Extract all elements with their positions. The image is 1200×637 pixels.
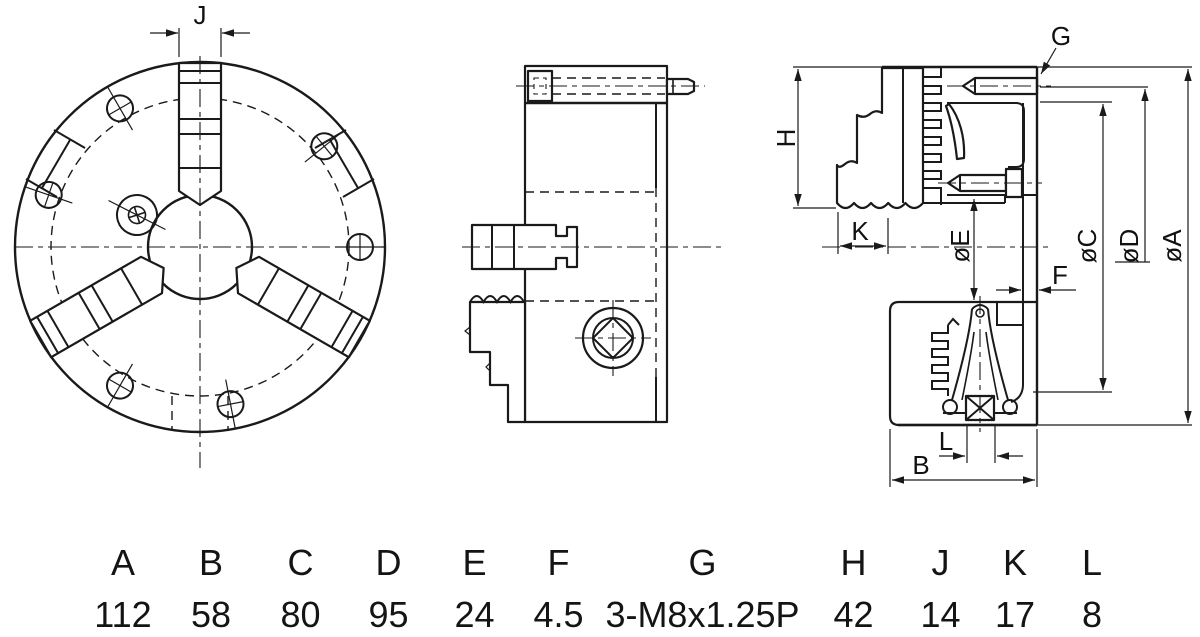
dim-label-e: øE xyxy=(945,229,975,262)
dim-label-h: H xyxy=(771,129,801,148)
dim-label-d: øD xyxy=(1114,229,1144,264)
table-value-g: 3-M8x1.25P xyxy=(600,592,805,637)
dim-label-c: øC xyxy=(1072,229,1102,264)
table-header-c: C xyxy=(256,534,345,592)
dim-label-l: L xyxy=(939,426,953,456)
side-view xyxy=(462,66,722,422)
table-header-row: A B C D E F G H J K L xyxy=(80,534,1133,592)
table-value-row: 112 58 80 95 24 4.5 3-M8x1.25P 42 14 17 … xyxy=(80,592,1133,637)
table-value-j: 14 xyxy=(902,592,979,637)
screw-mid xyxy=(938,169,1042,197)
chuck-technical-drawing: J xyxy=(0,0,1200,637)
table-header-e: E xyxy=(432,534,517,592)
dim-label-j: J xyxy=(194,0,207,30)
dimension-L: L xyxy=(939,424,1023,463)
dim-label-a: øA xyxy=(1157,229,1187,263)
table-header-k: K xyxy=(979,534,1051,592)
table-value-h: 42 xyxy=(805,592,902,637)
table-header-f: F xyxy=(517,534,600,592)
table-header-g: G xyxy=(600,534,805,592)
dimension-J: J xyxy=(150,0,250,57)
section-lower-block xyxy=(890,296,1037,432)
table-value-d: 95 xyxy=(345,592,432,637)
front-view: J xyxy=(15,0,385,468)
dimension-B: B xyxy=(890,429,1037,487)
screw-g xyxy=(947,78,1051,94)
dimension-K: K xyxy=(838,212,888,254)
table-value-f: 4.5 xyxy=(517,592,600,637)
key-socket xyxy=(99,183,174,248)
section-view: G H K øE F øC xyxy=(771,21,1192,487)
table-header-d: D xyxy=(345,534,432,592)
dimension-E: øE xyxy=(945,199,975,300)
dim-label-b: B xyxy=(912,450,929,480)
table-value-k: 17 xyxy=(979,592,1051,637)
side-jaw-lower xyxy=(465,296,525,422)
dim-label-g: G xyxy=(1051,21,1071,51)
table-header-a: A xyxy=(80,534,166,592)
table-header-b: B xyxy=(166,534,256,592)
dimension-G: G xyxy=(1041,21,1071,74)
table-value-a: 112 xyxy=(80,592,166,637)
table-header-h: H xyxy=(805,534,902,592)
bolt-hole xyxy=(213,377,248,431)
table-header-l: L xyxy=(1051,534,1133,592)
table-value-e: 24 xyxy=(432,592,517,637)
dim-label-k: K xyxy=(851,216,869,246)
table-value-b: 58 xyxy=(166,592,256,637)
table-value-l: 8 xyxy=(1051,592,1133,637)
table-value-c: 80 xyxy=(256,592,345,637)
dimension-table: A B C D E F G H J K L 112 58 80 95 24 4.… xyxy=(80,534,1133,637)
dim-label-f: F xyxy=(1052,260,1068,290)
section-jaw-assembly xyxy=(837,68,1051,208)
table-header-j: J xyxy=(902,534,979,592)
